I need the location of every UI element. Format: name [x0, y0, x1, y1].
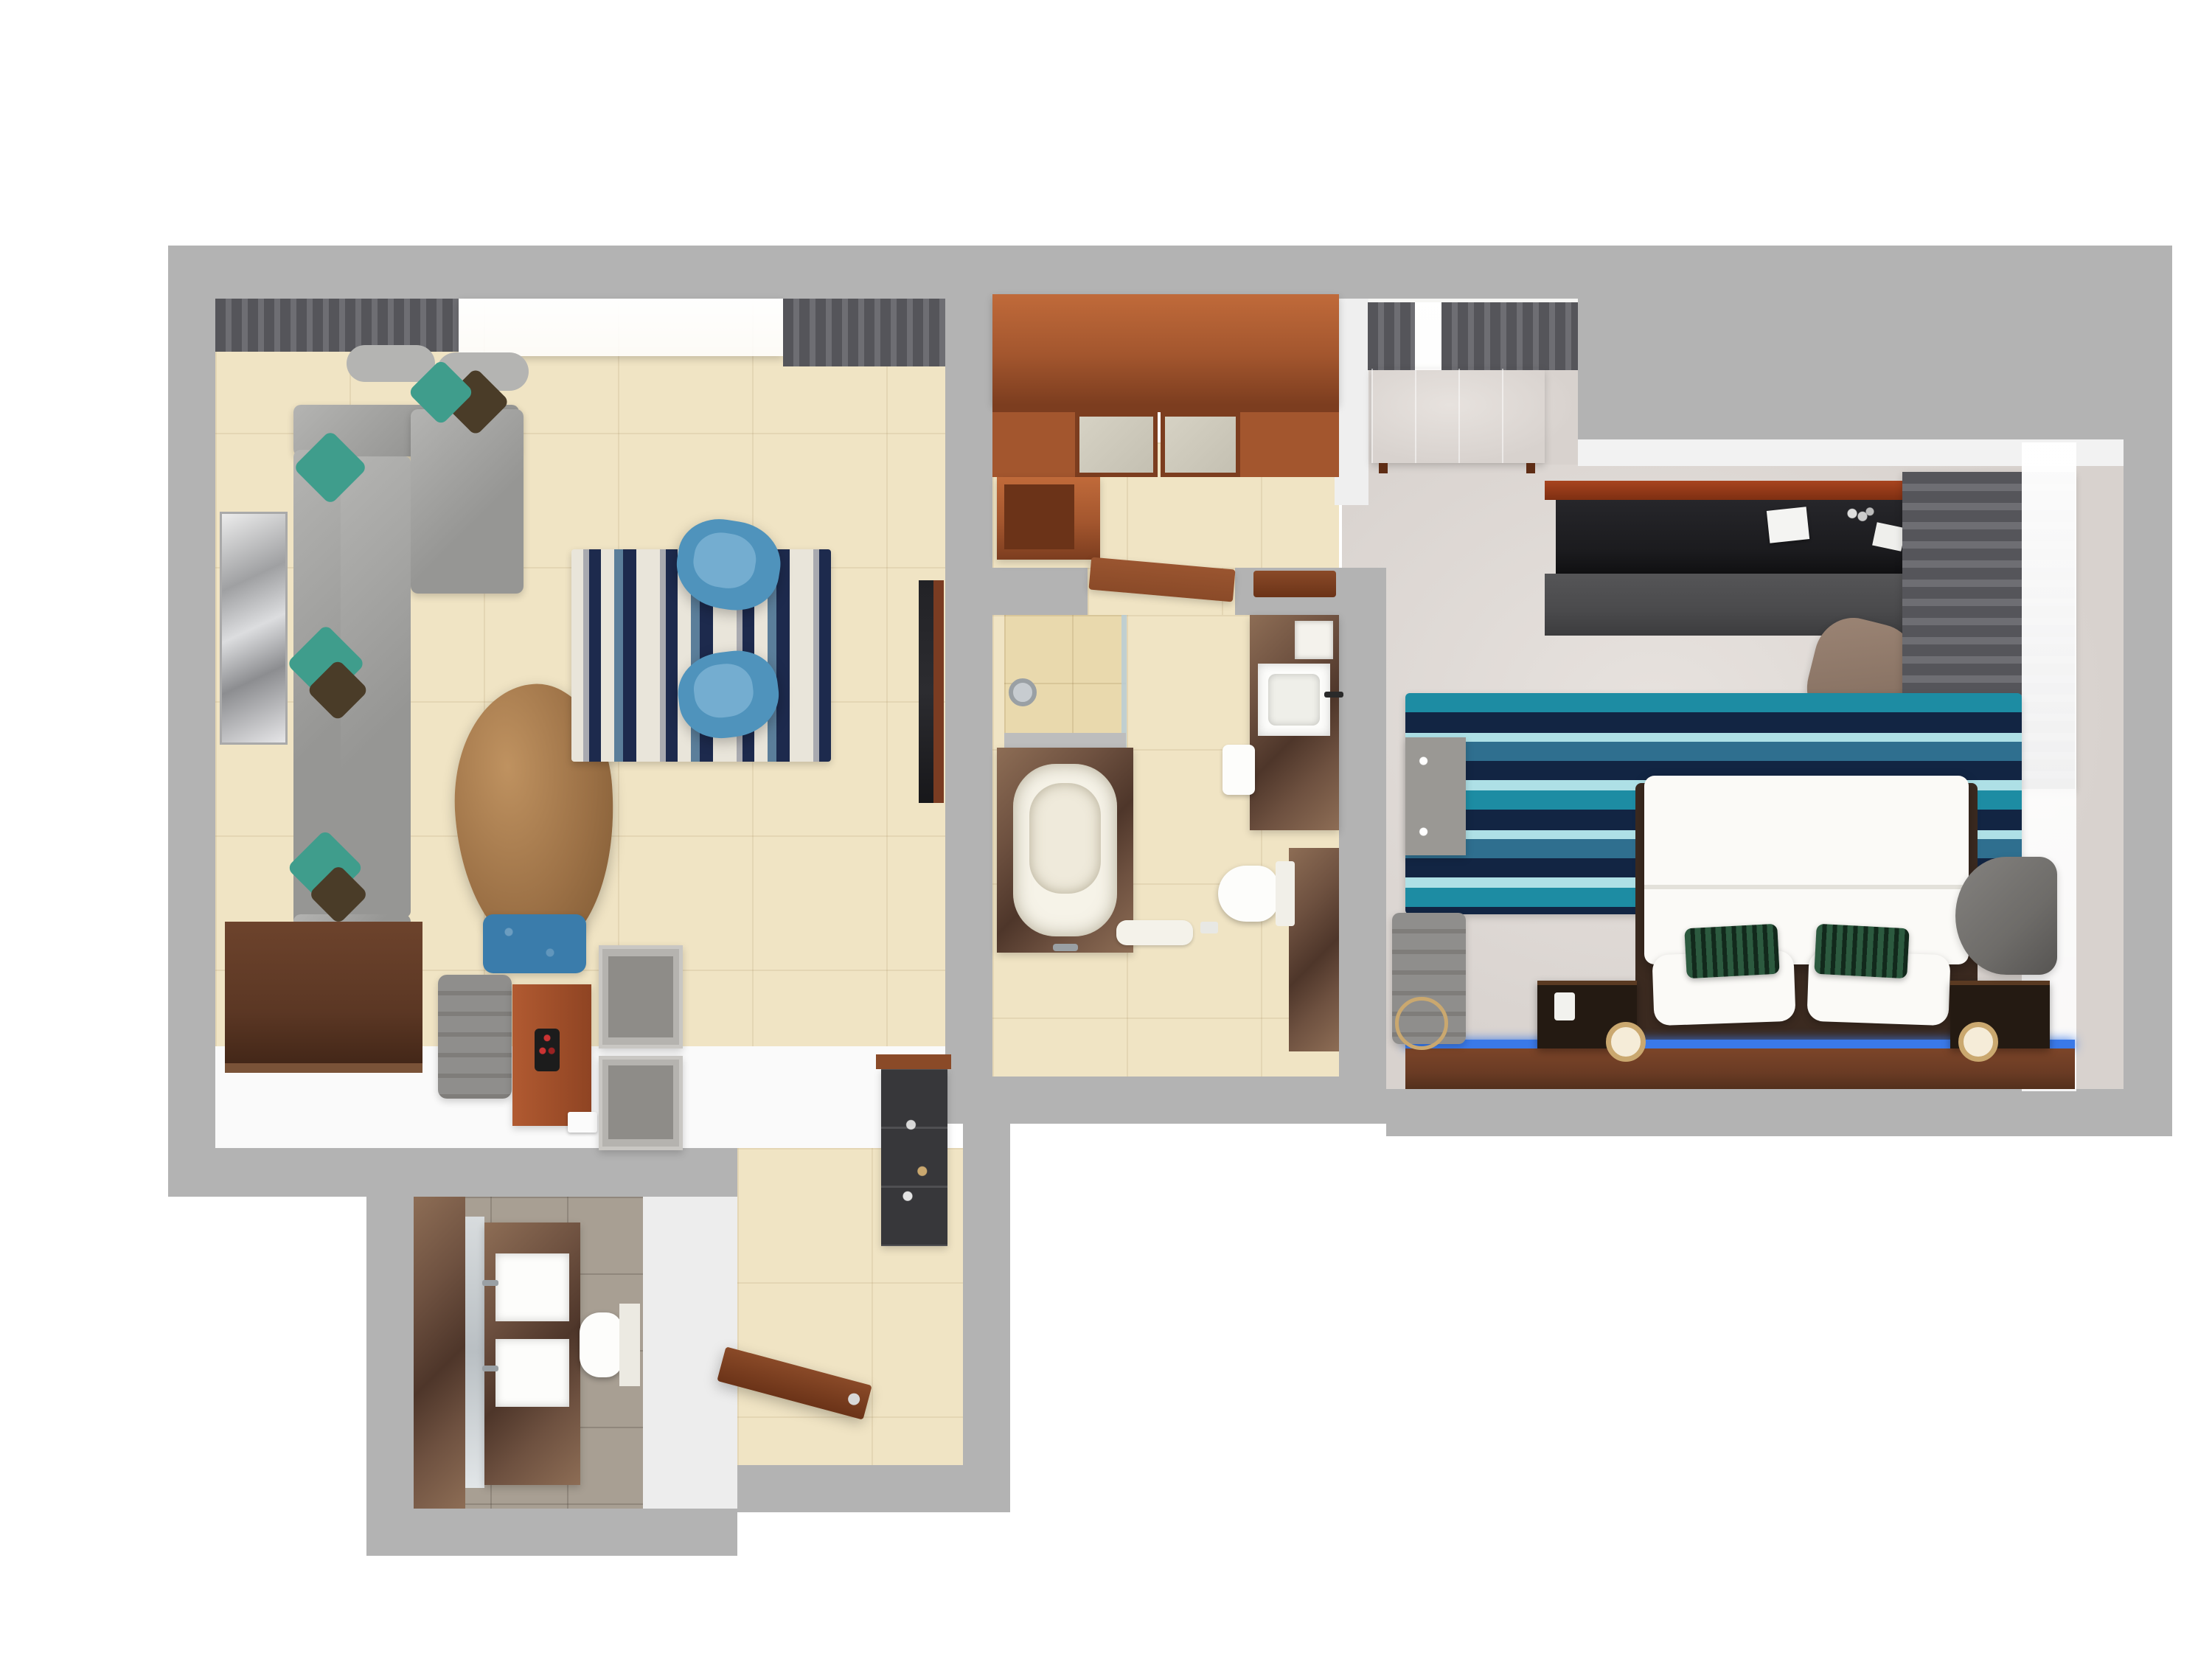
minibar-wood-top [876, 1054, 951, 1069]
floor-plan-canvas [0, 0, 2212, 1659]
table-lamp-left [1606, 1022, 1646, 1062]
bath-mat [1116, 920, 1193, 945]
wall-left [168, 246, 215, 1197]
shower-head [1009, 678, 1037, 706]
minibar-cabinet [881, 1068, 947, 1246]
luggage-rack-bottom-inner [608, 1065, 673, 1139]
sofa-chaise [411, 409, 524, 594]
dressing-panel-control [535, 1029, 560, 1071]
telephone [1554, 992, 1575, 1020]
wall-corridor-bottom [737, 1465, 1010, 1512]
bedroom-dresser [1371, 369, 1545, 463]
dresser-leg-1 [1379, 463, 1388, 473]
wardrobe-cabinet-right [1240, 412, 1339, 477]
wall-bathroom-bottom [945, 1077, 1386, 1124]
living-drape-right [783, 299, 945, 366]
powder-toilet-bowl [580, 1312, 622, 1377]
power-socket [568, 1112, 597, 1133]
sofa-bolster-1 [347, 345, 435, 382]
table-lamp-right [1958, 1022, 1998, 1062]
tv-screen [919, 580, 933, 803]
wall-top [168, 246, 1578, 299]
powder-faucet-bottom [482, 1366, 498, 1371]
bedroom-top-sheer-gap [1415, 302, 1441, 370]
toilet-tank [1276, 861, 1295, 926]
wood-wall-shelf [1253, 571, 1336, 597]
toilet-main [1218, 861, 1295, 926]
wall-powder-left [366, 1148, 414, 1556]
living-drape-left [215, 299, 459, 352]
wardrobe-track [992, 405, 1339, 412]
open-storage-cabinet [997, 477, 1100, 560]
wall-living-foyer-divider [945, 299, 992, 1123]
shower-glass-panel [1121, 615, 1127, 752]
powder-marble-accent-wall [414, 1197, 465, 1509]
wall-corridor-right [963, 1123, 1010, 1512]
powder-faucet-top [482, 1280, 498, 1286]
wardrobe-top-panel [992, 294, 1339, 405]
bathtub [1013, 764, 1117, 936]
open-storage-cabinet-interior [1004, 484, 1074, 549]
wardrobe-frosted-door-2 [1161, 412, 1240, 477]
dressing-panel-wood [512, 984, 591, 1126]
bed-duvet-fold [1644, 885, 1969, 889]
vessel-sink [1258, 664, 1330, 736]
toilet-bowl [1218, 866, 1279, 922]
luggage-rack-top [599, 945, 683, 1048]
wall-console-panel [225, 922, 422, 1073]
powder-sink-top [495, 1253, 569, 1321]
shower-half-wall [1004, 733, 1126, 748]
wall-console-ledge [225, 1063, 422, 1073]
entry-door-handle [846, 1392, 861, 1407]
blue-armchair-top-cushion [690, 529, 760, 592]
wardrobe-frosted-door-1 [1075, 412, 1158, 477]
bathtub-inner [1029, 783, 1101, 894]
desk-paper-1 [1767, 507, 1809, 543]
wall-bedroom-top-block [1578, 246, 2172, 463]
gray-upholstered-bench [438, 975, 512, 1099]
lower-marble-counter [1289, 848, 1339, 1051]
luggage-rack-top-inner [608, 956, 673, 1037]
wall-bathroom-right [1339, 568, 1386, 1123]
bidet-shelf [1222, 745, 1255, 795]
powder-sink-bottom [495, 1339, 569, 1407]
powder-toilet-tank [619, 1304, 640, 1386]
blue-tufted-ottoman [483, 914, 586, 973]
wall-powder-right-white [643, 1197, 737, 1509]
wall-bottom-left [168, 1148, 737, 1197]
luggage-rack-bottom [599, 1056, 683, 1150]
living-window-sheer [459, 299, 783, 356]
blue-armchair-bottom-cushion [691, 661, 756, 720]
round-wall-decor [1395, 997, 1448, 1050]
toilet-paper-holder [1200, 922, 1218, 933]
wall-bedroom-bottom [1386, 1089, 2172, 1136]
vanity-niche [1295, 621, 1333, 659]
shower-area [1004, 615, 1126, 733]
tv-wood-backing-panel [933, 580, 944, 803]
gray-barrel-armchair [1955, 857, 2057, 975]
bedroom-top-curtain-main [1441, 302, 1578, 370]
wardrobe-cabinet-left [992, 412, 1075, 477]
bed-pillow-green-right [1814, 924, 1909, 979]
wall-powder-bottom [366, 1509, 737, 1556]
wall-foyer-bedroom-stub [1335, 299, 1368, 505]
vessel-sink-basin [1268, 674, 1320, 726]
desk-pens [1845, 506, 1874, 525]
powder-vanity-mirror [465, 1217, 484, 1488]
wall-bedroom-right [2124, 463, 2172, 1136]
gray-tv-cabinet [1405, 737, 1466, 855]
sink-faucet [1324, 692, 1343, 698]
geometric-wall-mirror [220, 512, 288, 745]
powder-toilet [580, 1304, 643, 1386]
bathtub-faucet [1053, 944, 1078, 951]
bedroom-top-curtain-left [1368, 302, 1415, 370]
dresser-leg-2 [1526, 463, 1535, 473]
bed-pillow-green-left [1684, 924, 1779, 979]
